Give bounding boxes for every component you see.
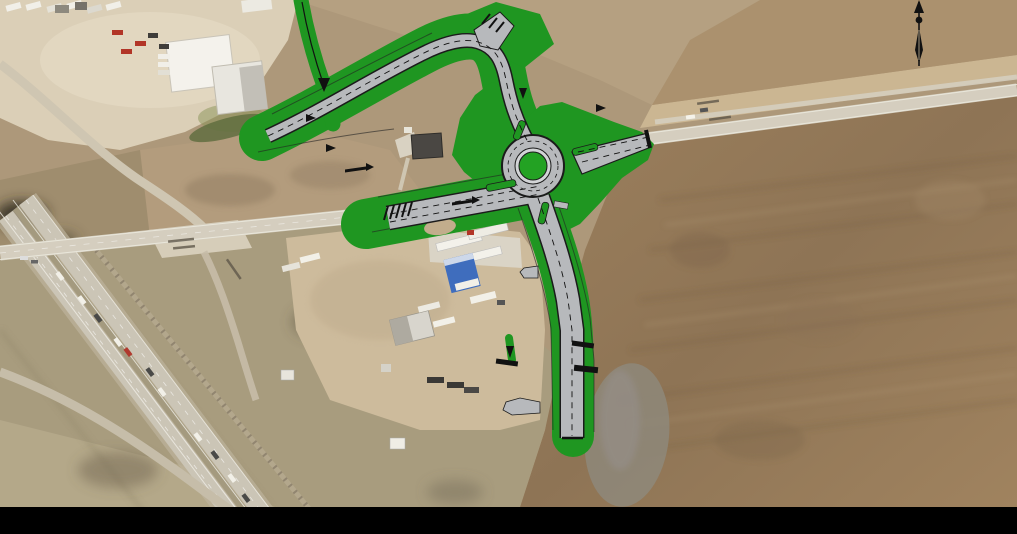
- car-overpass: [20, 256, 28, 260]
- dark-patch: [427, 480, 483, 504]
- roundabout-central-island: [519, 152, 547, 180]
- screenshot-root: [0, 0, 1017, 534]
- house-porch: [404, 127, 412, 133]
- car-overpass: [31, 260, 38, 264]
- north-arrow-hub: [916, 17, 923, 24]
- letterbox-bar: [0, 507, 1017, 534]
- house-roof: [411, 133, 443, 159]
- dark-patch: [78, 452, 158, 488]
- aerial-plan-image: [0, 0, 1017, 534]
